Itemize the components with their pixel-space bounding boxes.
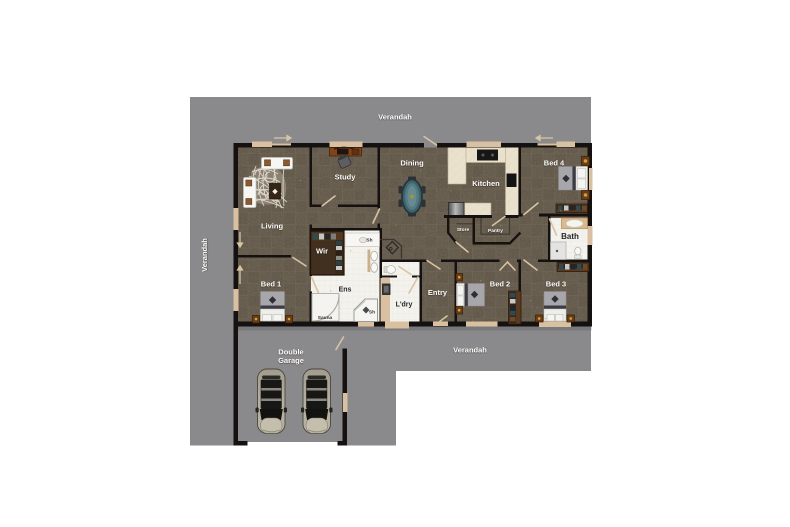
svg-text:Verandah: Verandah — [378, 113, 412, 122]
svg-text:Bed 3: Bed 3 — [546, 280, 566, 289]
svg-text:Dining: Dining — [400, 159, 424, 168]
svg-text:Verandah: Verandah — [453, 346, 487, 355]
svg-text:Study: Study — [335, 173, 357, 182]
svg-text:Entry: Entry — [428, 288, 448, 297]
svg-text:L'dry: L'dry — [396, 302, 413, 309]
svg-text:Kitchen: Kitchen — [472, 179, 500, 188]
svg-text:Ens: Ens — [339, 287, 352, 294]
svg-text:Bed 1: Bed 1 — [261, 280, 281, 289]
svg-text:Garage: Garage — [278, 356, 304, 365]
svg-text:Bath: Bath — [561, 232, 579, 241]
svg-text:Living: Living — [261, 222, 284, 231]
svg-text:Pantry: Pantry — [488, 228, 503, 234]
svg-text:Sh: Sh — [366, 238, 372, 244]
svg-text:Wir: Wir — [316, 247, 328, 256]
svg-text:Store: Store — [457, 227, 470, 233]
svg-text:Sh: Sh — [369, 310, 375, 316]
svg-text:Bed 4: Bed 4 — [544, 159, 565, 168]
svg-text:Verandah: Verandah — [200, 238, 209, 272]
svg-text:Bed 2: Bed 2 — [490, 280, 510, 289]
svg-text:Sauna: Sauna — [318, 315, 333, 321]
